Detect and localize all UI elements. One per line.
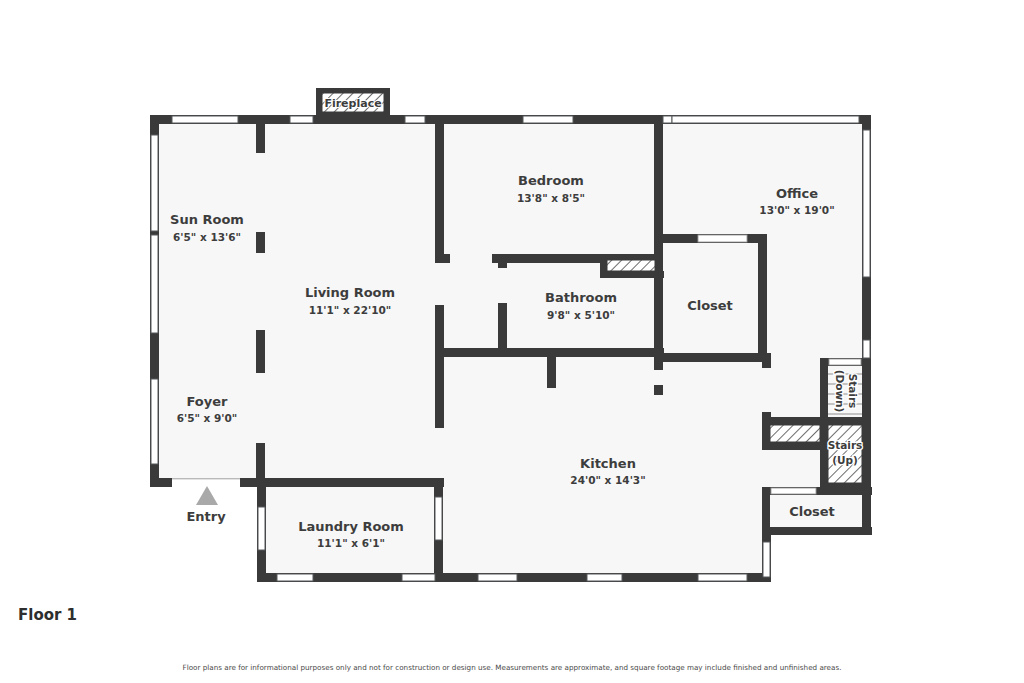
room-label-closet-hall: Closet xyxy=(687,298,733,313)
stairs-landing-hatch xyxy=(770,425,820,442)
room-dims-foyer: 6'5" x 9'0" xyxy=(177,412,238,424)
room-dims-sun-room: 6'5" x 13'6" xyxy=(173,231,241,243)
room-dims-office: 13'0" x 19'0" xyxy=(759,204,834,216)
room-label-living-room: Living Room xyxy=(305,285,395,300)
room-label-foyer: Foyer xyxy=(187,394,229,409)
room-label-kitchen: Kitchen xyxy=(580,456,636,471)
room-label-sun-room: Sun Room xyxy=(170,212,244,227)
floor-plan-svg: Sun Room 6'5" x 13'6" Living Room 11'1" … xyxy=(0,0,1024,683)
room-dims-bedroom: 13'8" x 8'5" xyxy=(517,192,585,204)
disclaimer-text: Floor plans are for informational purpos… xyxy=(183,663,842,672)
fireplace-label: Fireplace xyxy=(324,97,381,110)
room-label-closet-rear: Closet xyxy=(789,504,835,519)
floor-plan-page: Sun Room 6'5" x 13'6" Living Room 11'1" … xyxy=(0,0,1024,683)
shower-hatch xyxy=(607,260,655,271)
room-label-bathroom: Bathroom xyxy=(545,290,617,305)
floor-title: Floor 1 xyxy=(18,606,77,624)
entry-label: Entry xyxy=(186,509,226,524)
room-label-office: Office xyxy=(776,186,818,201)
entry-opening xyxy=(172,478,240,487)
stairs-down-label: Stairs (Down) xyxy=(834,370,859,413)
stairs-up-label-line1: Stairs xyxy=(828,439,863,451)
room-dims-kitchen: 24'0" x 14'3" xyxy=(570,474,645,486)
room-label-laundry: Laundry Room xyxy=(298,519,404,534)
room-dims-laundry: 11'1" x 6'1" xyxy=(317,537,385,549)
stairs-up-label-line2: (Up) xyxy=(832,454,858,466)
room-dims-living-room: 11'1" x 22'10" xyxy=(309,304,392,316)
room-label-bedroom: Bedroom xyxy=(518,173,584,188)
entry-arrow-icon xyxy=(196,486,218,505)
svg-text:Stairs: Stairs xyxy=(847,374,859,409)
svg-text:(Down): (Down) xyxy=(834,370,846,413)
room-dims-bathroom: 9'8" x 5'10" xyxy=(547,309,615,321)
